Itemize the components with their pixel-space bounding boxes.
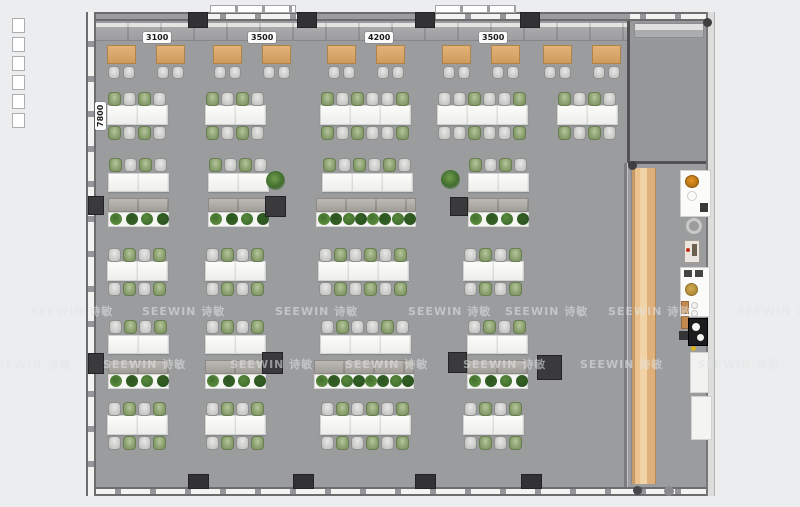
desk-cluster-table [107,415,168,435]
column-pillar [188,474,209,489]
chair [479,402,492,416]
plant-icon [470,213,482,225]
chair [396,126,409,140]
plant-icon [316,375,328,387]
desk-cluster-table [320,415,411,435]
desk-table [108,335,169,354]
chair [138,92,151,106]
chair [321,402,334,416]
plate-gold-icon [685,283,698,296]
chair [349,282,362,296]
chair [323,158,336,172]
chair [321,126,334,140]
chair [458,66,470,79]
chair [108,92,121,106]
chair [381,92,394,106]
lounge-table [442,45,471,64]
chair [394,248,407,262]
chair [336,436,349,450]
chair [443,66,455,79]
chair [138,282,151,296]
chair [366,126,379,140]
plant-icon [126,375,138,387]
chair [236,436,249,450]
chair [153,126,166,140]
chair [509,402,522,416]
chair [468,320,481,334]
potted-plant-icon [266,171,285,190]
burner-icon-1 [692,323,700,331]
chair [251,436,264,450]
faucet-ring-icon [687,191,697,201]
chair [139,158,152,172]
chair [396,436,409,450]
chair [153,248,166,262]
exterior-tick [12,56,25,71]
chair [588,92,601,106]
chair [157,66,169,79]
exterior-tick [12,75,25,90]
chair [509,248,522,262]
sink-bowl-icon [685,175,699,188]
chair [334,282,347,296]
chair [514,158,527,172]
chair [139,320,152,334]
chair [513,126,526,140]
desk-cluster-table [320,105,411,125]
desk-cluster-table [463,415,524,435]
desk-table [322,173,413,192]
chair [321,436,334,450]
chair [251,320,264,334]
chair [138,126,151,140]
chair [366,92,379,106]
exterior-tick [12,18,25,33]
chair [438,92,451,106]
chair [319,248,332,262]
column-pillar [520,12,540,28]
watermark-text: SEEWIN 诗敏 [0,356,71,372]
lounge-table [376,45,405,64]
chair [224,158,237,172]
chair [509,282,522,296]
chair [251,126,264,140]
chair [396,402,409,416]
chair [138,436,151,450]
chair [251,282,264,296]
chair [109,320,122,334]
chair [336,402,349,416]
furniture-layer: 3100350042003500SEEWIN 诗敏SEEWIN 诗敏SEEWIN… [0,0,800,507]
chair [229,66,241,79]
vent-icon-1 [684,270,692,277]
chair [513,92,526,106]
plant-icon [343,213,355,225]
chair [368,158,381,172]
chair [381,402,394,416]
chair [366,320,379,334]
plant-icon [392,213,404,225]
chair [236,126,249,140]
dimension-label: 4200 [365,32,393,43]
chair [336,320,349,334]
lounge-table [213,45,242,64]
chair [351,436,364,450]
chair [392,66,404,79]
chair [206,402,219,416]
chair [108,436,121,450]
chair [603,126,616,140]
chair [438,126,451,140]
chair [221,126,234,140]
plant-icon [390,375,402,387]
lounge-table [262,45,291,64]
column-pillar [188,12,208,28]
desk-table [208,173,269,192]
pantry-cabinet-2 [691,396,712,440]
plant-icon [226,213,238,225]
chair [351,126,364,140]
chair [336,92,349,106]
chair [154,320,167,334]
column-pillar [297,12,317,28]
chair [206,436,219,450]
chair [221,402,234,416]
chair [109,158,122,172]
cup-icon-2 [691,310,698,317]
chair [593,66,605,79]
desk-cluster-table [107,105,168,125]
plant-icon [157,375,169,387]
column-pillar [415,474,436,489]
chair [108,248,121,262]
chair [124,320,137,334]
column-pillar [450,197,468,216]
warning-dot [691,346,696,351]
chair [464,282,477,296]
chair [172,66,184,79]
watermark-text: SEEWIN 诗敏 [608,303,691,319]
lounge-table [543,45,572,64]
column-pillar [265,196,286,217]
chair [484,158,497,172]
chair [498,126,511,140]
dimension-label: 3500 [248,32,276,43]
chair [396,92,409,106]
chair [108,282,121,296]
lounge-table [107,45,136,64]
desk-table [467,335,528,354]
chair [603,92,616,106]
plant-icon [341,375,353,387]
chair [221,436,234,450]
chair [588,126,601,140]
chair [336,126,349,140]
watermark-text: SEEWIN 诗敏 [275,303,358,319]
c-ring-icon [686,218,702,234]
chair [236,320,249,334]
chair [251,402,264,416]
chair [236,248,249,262]
plant-icon [355,213,367,225]
lounge-table [156,45,185,64]
chair [377,66,389,79]
chair [221,282,234,296]
dimension-label: 3100 [143,32,171,43]
desk-cluster-table [205,105,266,125]
chair [153,282,166,296]
plant-icon [210,213,222,225]
storage-cabinet [316,198,416,212]
chair [366,402,379,416]
chair [483,92,496,106]
chair [263,66,275,79]
chair [453,92,466,106]
chair [123,248,136,262]
chair [479,436,492,450]
chair [123,436,136,450]
wall-junction-dot [633,486,642,495]
lounge-table [491,45,520,64]
desk-cluster-table [318,261,409,281]
desk-cluster-table [463,261,524,281]
chair [479,248,492,262]
cup-icon-1 [691,302,698,309]
chair [469,158,482,172]
chair [153,436,166,450]
storage-cabinet [468,198,529,212]
chair [209,158,222,172]
chair [328,66,340,79]
chair [558,92,571,106]
chair [464,436,477,450]
wall-junction-dot [703,18,712,27]
storage-cabinet [208,198,269,212]
wall-junction-dot [664,486,674,496]
lounge-table [327,45,356,64]
watermark-text: SEEWIN 诗敏 [103,356,186,372]
column-pillar [88,196,104,215]
chair [499,158,512,172]
chair [206,320,219,334]
chair [608,66,620,79]
chair [236,282,249,296]
desk-cluster-table [205,261,266,281]
watermark-text: SEEWIN 诗敏 [463,356,546,372]
chair [206,282,219,296]
chair [138,402,151,416]
burner-icon-2 [697,334,704,341]
chair [321,92,334,106]
chair [464,402,477,416]
chair [349,248,362,262]
chair [123,402,136,416]
plant-icon [318,213,330,225]
chair [364,248,377,262]
chair [381,320,394,334]
plant-icon [516,375,528,387]
chair [334,248,347,262]
power-dot [686,248,690,252]
chair [573,126,586,140]
chair [464,248,477,262]
vent-icon-2 [695,270,703,277]
chair [498,320,511,334]
watermark-text: SEEWIN 诗敏 [505,303,588,319]
chair [254,158,267,172]
lounge-table [592,45,621,64]
kettle-icon [679,331,688,340]
chair [351,92,364,106]
chair [494,402,507,416]
column-pillar [521,474,542,489]
chair [379,282,392,296]
plant-icon [110,375,122,387]
desk-cluster-table [437,105,528,125]
column-pillar [293,474,314,489]
plant-icon [517,213,529,225]
plant-icon [486,213,498,225]
chair [123,282,136,296]
chair [381,126,394,140]
chair [494,248,507,262]
plant-icon [207,375,219,387]
chair [544,66,556,79]
desk-cluster-table [107,261,168,281]
chair [351,402,364,416]
desk-table [320,335,411,354]
stove-icon [688,318,708,346]
floor-plan-canvas: 7800 3100350042003500SEEWIN 诗敏SEEWIN 诗敏S… [0,0,800,507]
plant-icon [157,213,169,225]
watermark-text: SEEWIN 诗敏 [580,356,663,372]
chair [513,320,526,334]
watermark-text: SEEWIN 诗敏 [737,303,800,319]
chair [453,126,466,140]
chair [319,282,332,296]
chair [153,92,166,106]
plant-icon [404,213,416,225]
chair [379,248,392,262]
chair [236,92,249,106]
chair [251,248,264,262]
chair [123,66,135,79]
chair [321,320,334,334]
chair [479,282,492,296]
chair [398,158,411,172]
chair [351,320,364,334]
exterior-tick [12,94,25,109]
chair [366,436,379,450]
desk-table [205,335,266,354]
chair [124,158,137,172]
appliance-panel [692,244,697,256]
chair [381,436,394,450]
chair [236,402,249,416]
watermark-text: SEEWIN 诗敏 [345,356,428,372]
exterior-tick [12,37,25,52]
potted-plant-icon [441,170,460,189]
chair [394,282,407,296]
plant-icon [485,375,497,387]
chair [383,158,396,172]
chair [492,66,504,79]
plant-icon [402,375,414,387]
chair [509,436,522,450]
watermark-text: SEEWIN 诗敏 [30,303,113,319]
chair [153,402,166,416]
plant-icon [353,375,365,387]
chair [206,248,219,262]
chair [239,158,252,172]
desk-cluster-table [557,105,618,125]
watermark-text: SEEWIN 诗敏 [142,303,225,319]
desk-table [468,173,529,192]
chair [498,92,511,106]
watermark-text: SEEWIN 诗敏 [697,356,780,372]
plant-icon [469,375,481,387]
chair [468,92,481,106]
desk-cluster-table [205,415,266,435]
chair [558,126,571,140]
chair [138,248,151,262]
watermark-text: SEEWIN 诗敏 [408,303,491,319]
exterior-tick [12,113,25,128]
chair [483,126,496,140]
chair [343,66,355,79]
chair [353,158,366,172]
wall-junction-dot [628,161,637,170]
chair [221,320,234,334]
desk-table [108,173,169,192]
chair [108,66,120,79]
chair [221,248,234,262]
plant-icon [126,213,138,225]
chair [364,282,377,296]
chair [573,92,586,106]
column-pillar [88,353,104,374]
chair [278,66,290,79]
dimension-label: 3500 [479,32,507,43]
chair [559,66,571,79]
chair [251,92,264,106]
speaker-icon [700,203,708,212]
chair [123,126,136,140]
chair [214,66,226,79]
chair [483,320,496,334]
chair [206,126,219,140]
plant-icon [223,375,235,387]
chair [206,92,219,106]
chair [494,282,507,296]
chair [507,66,519,79]
chair [108,126,121,140]
chair [221,92,234,106]
watermark-text: SEEWIN 诗敏 [230,356,313,372]
chair [123,92,136,106]
chair [338,158,351,172]
plant-icon [110,213,122,225]
chair [396,320,409,334]
chair [494,436,507,450]
column-pillar [415,12,435,28]
storage-cabinet [108,198,169,212]
plant-icon [254,375,266,387]
chair [154,158,167,172]
chair [468,126,481,140]
chair [108,402,121,416]
